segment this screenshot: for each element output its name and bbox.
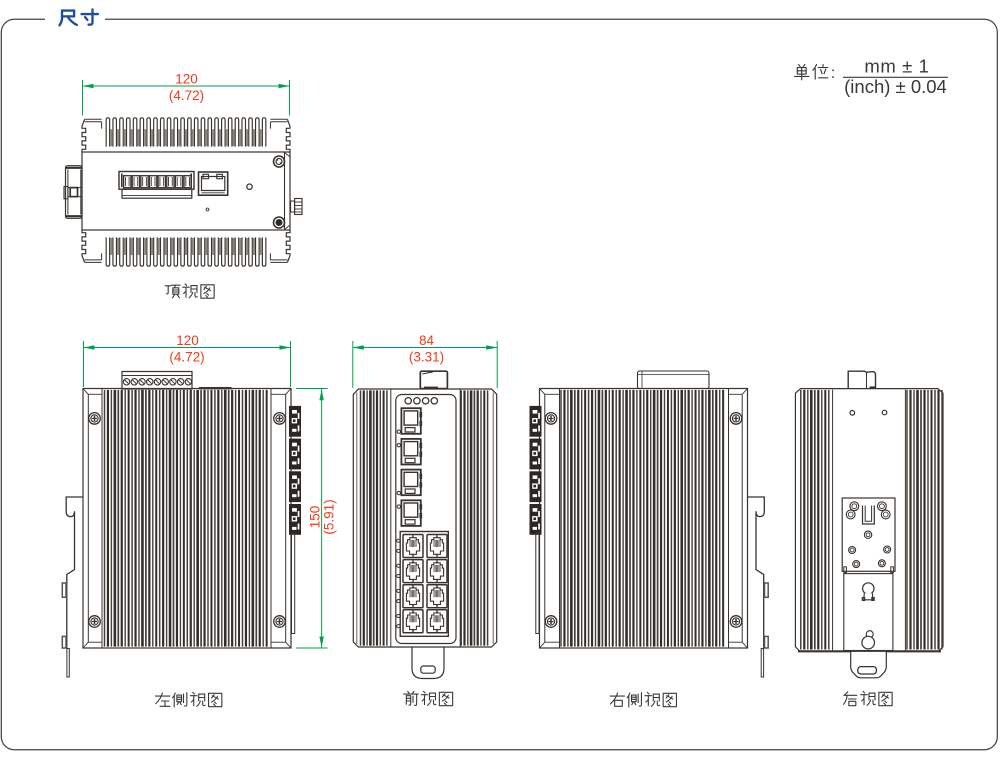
svg-text:(5.91): (5.91) [322,499,337,534]
svg-text:120: 120 [176,333,199,348]
svg-text:(inch) ± 0.04: (inch) ± 0.04 [844,76,947,97]
svg-text:84: 84 [419,333,435,348]
svg-text:(4.72): (4.72) [169,350,204,365]
svg-text:(4.72): (4.72) [169,88,204,103]
svg-text::: : [831,65,835,82]
svg-text:150: 150 [308,506,323,529]
svg-text:120: 120 [175,72,198,87]
svg-text:(3.31): (3.31) [409,350,444,365]
svg-text:mm ± 1: mm ± 1 [864,56,929,77]
